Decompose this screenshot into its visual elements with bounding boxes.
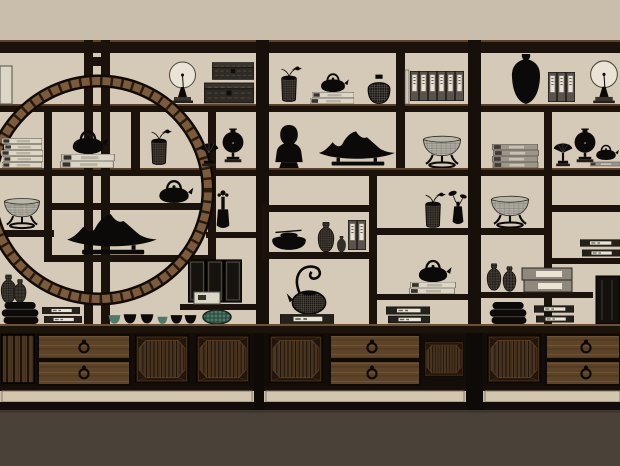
pot-stack [490,302,527,324]
cabinet-center [264,333,466,410]
dark-panel [596,276,620,324]
celadon-basket [203,310,231,324]
book-files-3 [548,72,574,101]
cabinet-right [483,333,620,410]
book-files-1 [405,70,464,104]
crackle-bowl-3 [491,196,528,227]
shelf-scene [0,0,620,466]
crackle-bowl-2 [423,136,460,167]
white-book [194,292,220,304]
bowl-stack-1 [2,302,39,324]
white-book-edge [0,66,12,104]
book-stack-gray [493,144,539,168]
cabinet-left [0,333,254,410]
drawer [546,361,620,385]
3d-viewport[interactable] [0,0,620,466]
floor-shadow [0,410,620,413]
drawer [330,361,420,385]
floor [0,410,620,466]
drawer [330,335,420,359]
drawer [38,335,130,359]
crackle-bowl-1 [4,199,39,229]
book-stack-cream-1 [1,138,43,167]
drawer [38,361,130,385]
base-cabinets [0,324,620,410]
drawer [546,335,620,359]
book-files-2 [348,220,365,249]
book-boxes-gray [522,268,572,292]
